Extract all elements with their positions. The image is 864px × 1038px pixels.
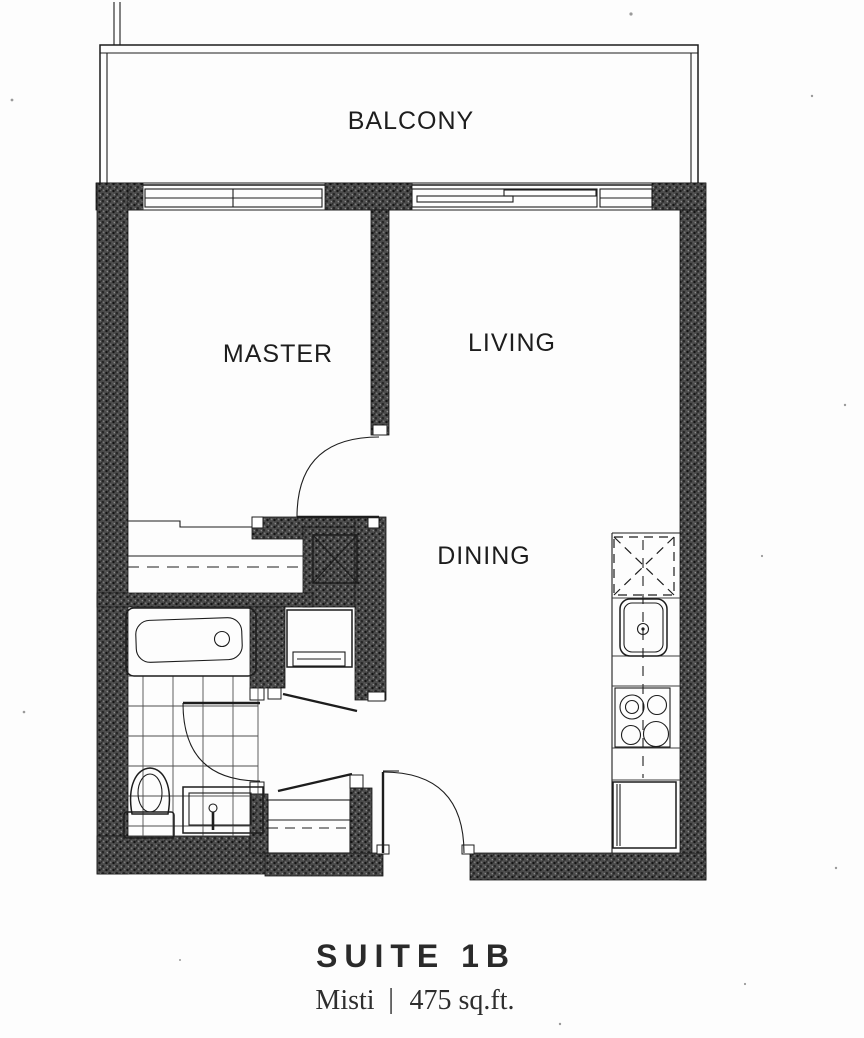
living-label: LIVING (468, 329, 556, 357)
wall-closet-bath (97, 593, 313, 607)
wall-right (680, 210, 706, 880)
balcony-label: BALCONY (348, 107, 474, 135)
suite-title: SUITE 1B (316, 938, 516, 974)
suite-area: 475 sq.ft. (410, 985, 515, 1016)
paper-background (0, 0, 864, 1038)
master-label: MASTER (223, 340, 333, 368)
wall-master-living (371, 210, 389, 435)
wall-bath-lower (250, 794, 268, 853)
wall-bottom-left (97, 836, 268, 874)
floorplan-page: BALCONY MASTER LIVING DINING SUITE 1B Mi… (0, 0, 864, 1038)
wall-bottom-right (470, 853, 706, 880)
wall-left (97, 183, 128, 874)
floorplan-drawing: BALCONY MASTER LIVING DINING SUITE 1B Mi… (0, 0, 864, 1038)
wall-pier (652, 183, 706, 210)
wall-hall-dining (355, 517, 386, 700)
model-name: Misti (315, 985, 374, 1016)
wall-coat-closet (350, 788, 372, 853)
wall-pier (325, 183, 412, 210)
wall-bottom-center (265, 853, 383, 876)
dining-label: DINING (437, 542, 531, 570)
title-separator: | (388, 984, 394, 1015)
